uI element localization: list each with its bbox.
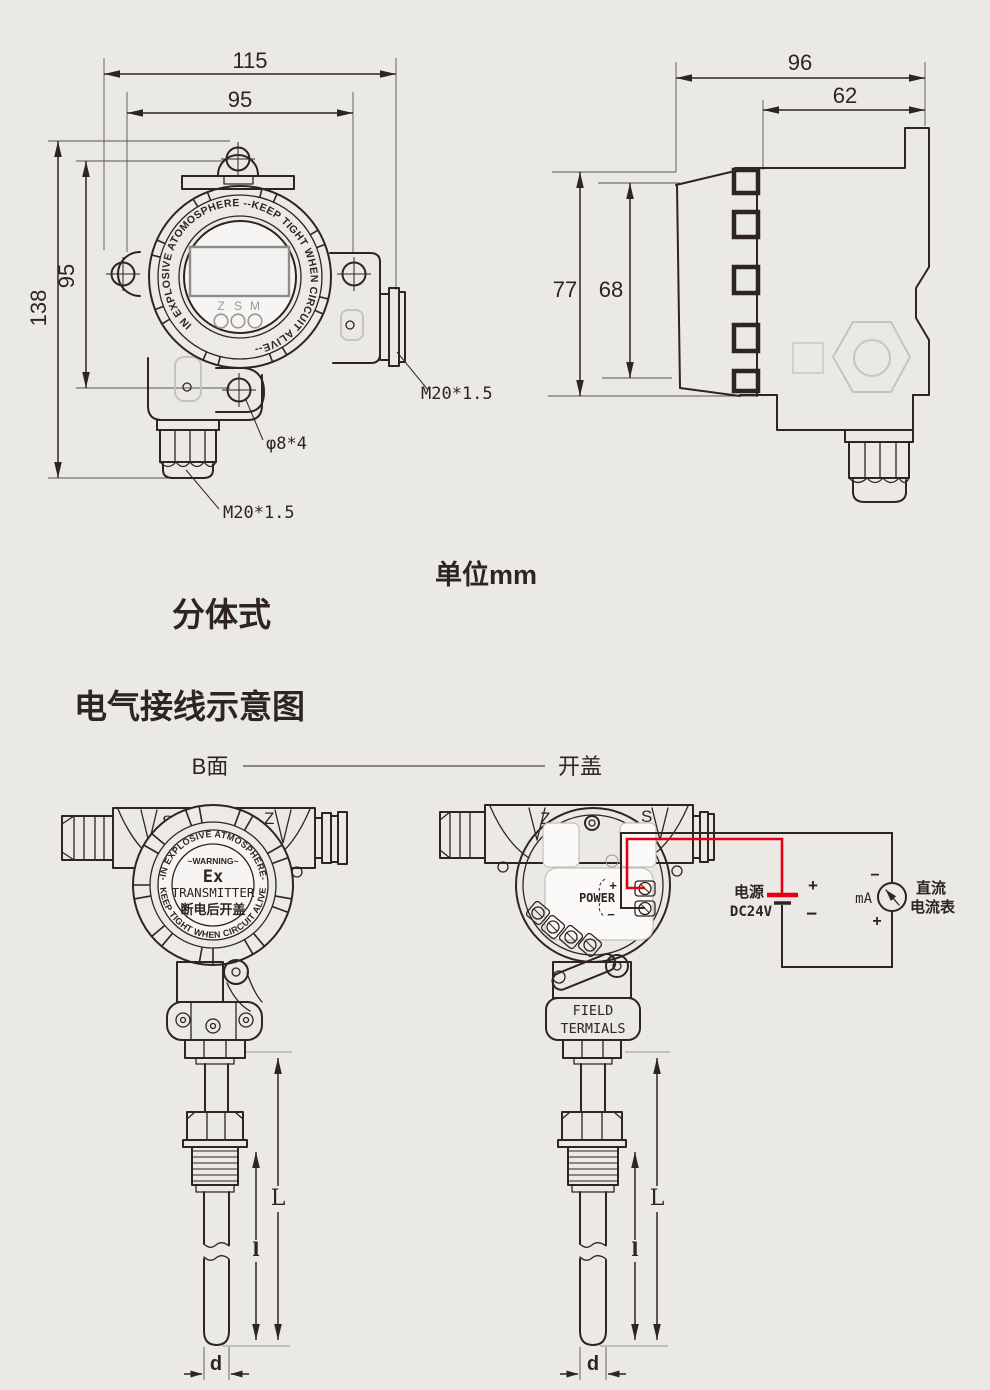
front-ghost-panel-bottom: [175, 357, 201, 401]
btn-z-label: Z: [217, 299, 224, 313]
mount-screw-top: [221, 142, 255, 176]
side-housing: [676, 128, 929, 430]
field-line1: FIELD: [573, 1003, 614, 1019]
b-transmitter: TRANSMITTER: [172, 885, 255, 900]
battery-plus-label: +: [808, 876, 818, 895]
open-dim-d: d: [587, 1353, 599, 1375]
open-dim-l: l: [631, 1239, 638, 1261]
supply-voltage: DC24V: [730, 904, 773, 920]
device-b: S Z -IN EXPLOSIVE ATMOSPHERE- KEEP TIGHT…: [62, 805, 347, 1380]
battery-minus-label: −: [806, 904, 817, 925]
circuit: + − 电源 DC24V − + mA 直流 电流表: [621, 833, 956, 967]
front-ghost-panel-side: [341, 310, 363, 340]
meter-minus-label: −: [870, 867, 879, 884]
meter-name-1: 直流: [916, 879, 946, 897]
diagram-canvas: 115 95 138 95: [0, 0, 990, 1390]
meter-name-2: 电流表: [910, 898, 956, 916]
mount-screw-left: [106, 257, 140, 291]
dim-68: 68: [599, 277, 623, 302]
front-view: 115 95 138 95: [26, 48, 493, 523]
open-top-hole: [585, 816, 599, 830]
b-warning: ~WARNING~: [187, 856, 238, 866]
top-lug-notch: [224, 176, 253, 184]
b-ex-mark: Ex: [203, 867, 223, 887]
power-label: POWER: [579, 891, 616, 905]
caption-wiring-title: 电气接线示意图: [74, 688, 305, 725]
dim-95-top: 95: [228, 87, 252, 112]
b-probe: [183, 1040, 247, 1345]
b-dim-d: d: [210, 1353, 222, 1375]
ammeter-needle: [886, 890, 899, 905]
open-dim-L: L: [650, 1186, 665, 1211]
dim-115: 115: [232, 48, 267, 73]
label-phi8x4: φ8*4: [266, 434, 307, 454]
power-minus: −: [607, 907, 615, 922]
meter-unit-label: mA: [855, 891, 872, 907]
front-side-gland: [380, 288, 405, 366]
btn-m-label: M: [250, 299, 260, 313]
device-open: Z S POWER + −: [440, 805, 714, 1380]
open-neck-assembly: FIELD TERMIALS: [546, 952, 640, 1040]
b-open-note: 断电后开盖: [180, 902, 245, 917]
caption-units: 单位mm: [435, 559, 537, 590]
cover-screw-bottom: [222, 373, 256, 407]
b-probe-dims: L l d: [184, 1052, 292, 1380]
drawing-page: 115 95 138 95: [0, 0, 990, 1390]
open-right-gland: [693, 812, 714, 862]
open-probe-dims: L l d: [560, 1052, 670, 1380]
supply-name: 电源: [734, 883, 764, 901]
dim-138: 138: [26, 290, 51, 327]
open-probe: [558, 1040, 626, 1345]
b-neck-assembly: [167, 960, 262, 1040]
lcd-display: [190, 247, 289, 296]
dim-96: 96: [788, 50, 812, 75]
label-m20-side: M20*1.5: [421, 384, 493, 404]
b-right-gland: [315, 812, 347, 864]
dim-95-left: 95: [54, 264, 79, 288]
dim-77: 77: [553, 277, 577, 302]
side-ghost-details: [793, 322, 910, 392]
open-clamp-screw-right: [672, 866, 682, 876]
open-small-hole: [606, 855, 618, 867]
btn-s-label: S: [234, 299, 242, 313]
b-dim-L: L: [271, 1186, 286, 1211]
meter-plus-label: +: [872, 913, 881, 930]
leader-m20-bottom: [186, 470, 219, 509]
field-line2: TERMIALS: [560, 1021, 625, 1037]
open-panel-right: [620, 823, 656, 867]
open-panel-left: [543, 823, 579, 867]
label-open-cover: 开盖: [558, 754, 602, 779]
side-view: 96 62 77 68: [548, 50, 929, 502]
front-bottom-gland: [157, 420, 219, 478]
label-m20-bottom: M20*1.5: [223, 503, 295, 523]
front-side-conduit: [330, 253, 405, 366]
front-hole-side: [346, 321, 354, 329]
power-plus: +: [609, 878, 617, 893]
b-dim-l: l: [252, 1239, 259, 1261]
label-b-side: B面: [192, 754, 229, 779]
b-left-gland: [62, 816, 113, 860]
front-hole-bottom: [183, 383, 191, 391]
dim-62: 62: [833, 83, 857, 108]
caption-variant: 分体式: [172, 596, 271, 633]
side-bottom-gland: [845, 430, 913, 502]
mount-screw-right: [337, 257, 371, 291]
open-left-gland: [440, 812, 485, 858]
open-top-hole-pin: [589, 820, 595, 826]
wiring-header: B面 开盖: [192, 754, 602, 779]
